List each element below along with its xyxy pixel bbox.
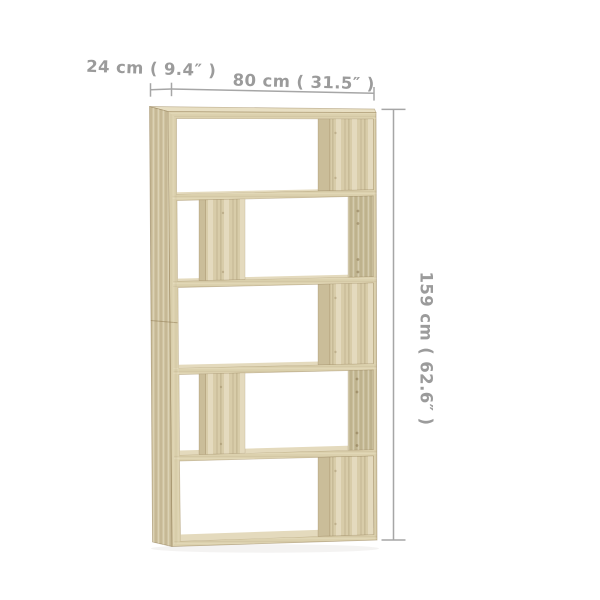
screw-hole [334, 132, 336, 134]
compartment-1 [177, 119, 374, 195]
height-dimension-label: 159 cm ( 62.6″ ) [417, 272, 436, 426]
screw-hole [356, 391, 359, 394]
depth-dimension-line [151, 89, 172, 90]
compartment-2 [177, 196, 374, 281]
divider-side-edge [199, 200, 206, 281]
screw-hole [356, 432, 359, 435]
right-inner-wall [348, 370, 374, 450]
divider-panel [206, 373, 246, 454]
right-inner-wall [348, 196, 374, 277]
divider-panel [330, 119, 374, 191]
depth-dimension-label: 24 cm ( 9.4″ ) [86, 57, 217, 81]
height-dimension: 159 cm ( 62.6″ ) [382, 109, 436, 540]
depth-dimension: 24 cm ( 9.4″ ) [86, 57, 217, 97]
screw-hole [222, 271, 224, 273]
bookshelf-dimension-diagram: 24 cm ( 9.4″ ) 80 cm ( 31.5″ ) 159 cm ( … [0, 0, 600, 600]
divider-side-edge [318, 457, 330, 536]
screw-hole [357, 210, 360, 213]
screw-hole [334, 177, 336, 179]
screw-hole [220, 386, 222, 388]
width-dimension-label: 80 cm ( 31.5″ ) [232, 71, 375, 94]
compartment-3 [178, 283, 374, 368]
screw-hole [334, 470, 336, 472]
screw-hole [357, 222, 360, 225]
left-side-panel [150, 107, 173, 547]
screw-hole [357, 258, 360, 261]
compartment-5 [180, 456, 375, 541]
screw-hole [334, 523, 336, 525]
screw-hole [357, 271, 360, 274]
screw-hole [356, 444, 359, 447]
divider-side-edge [318, 284, 330, 365]
bookshelf [150, 107, 380, 553]
screw-hole [220, 443, 222, 445]
screw-hole [334, 297, 336, 299]
divider-side-edge [318, 119, 330, 191]
screw-hole [356, 378, 359, 381]
divider-side-edge [199, 374, 206, 454]
top-surface [150, 107, 377, 113]
screw-hole [222, 212, 224, 214]
compartment-4 [179, 370, 374, 455]
screw-hole [334, 351, 336, 353]
product-dimension-image: 24 cm ( 9.4″ ) 80 cm ( 31.5″ ) 159 cm ( … [0, 0, 600, 600]
divider-panel [206, 199, 246, 281]
